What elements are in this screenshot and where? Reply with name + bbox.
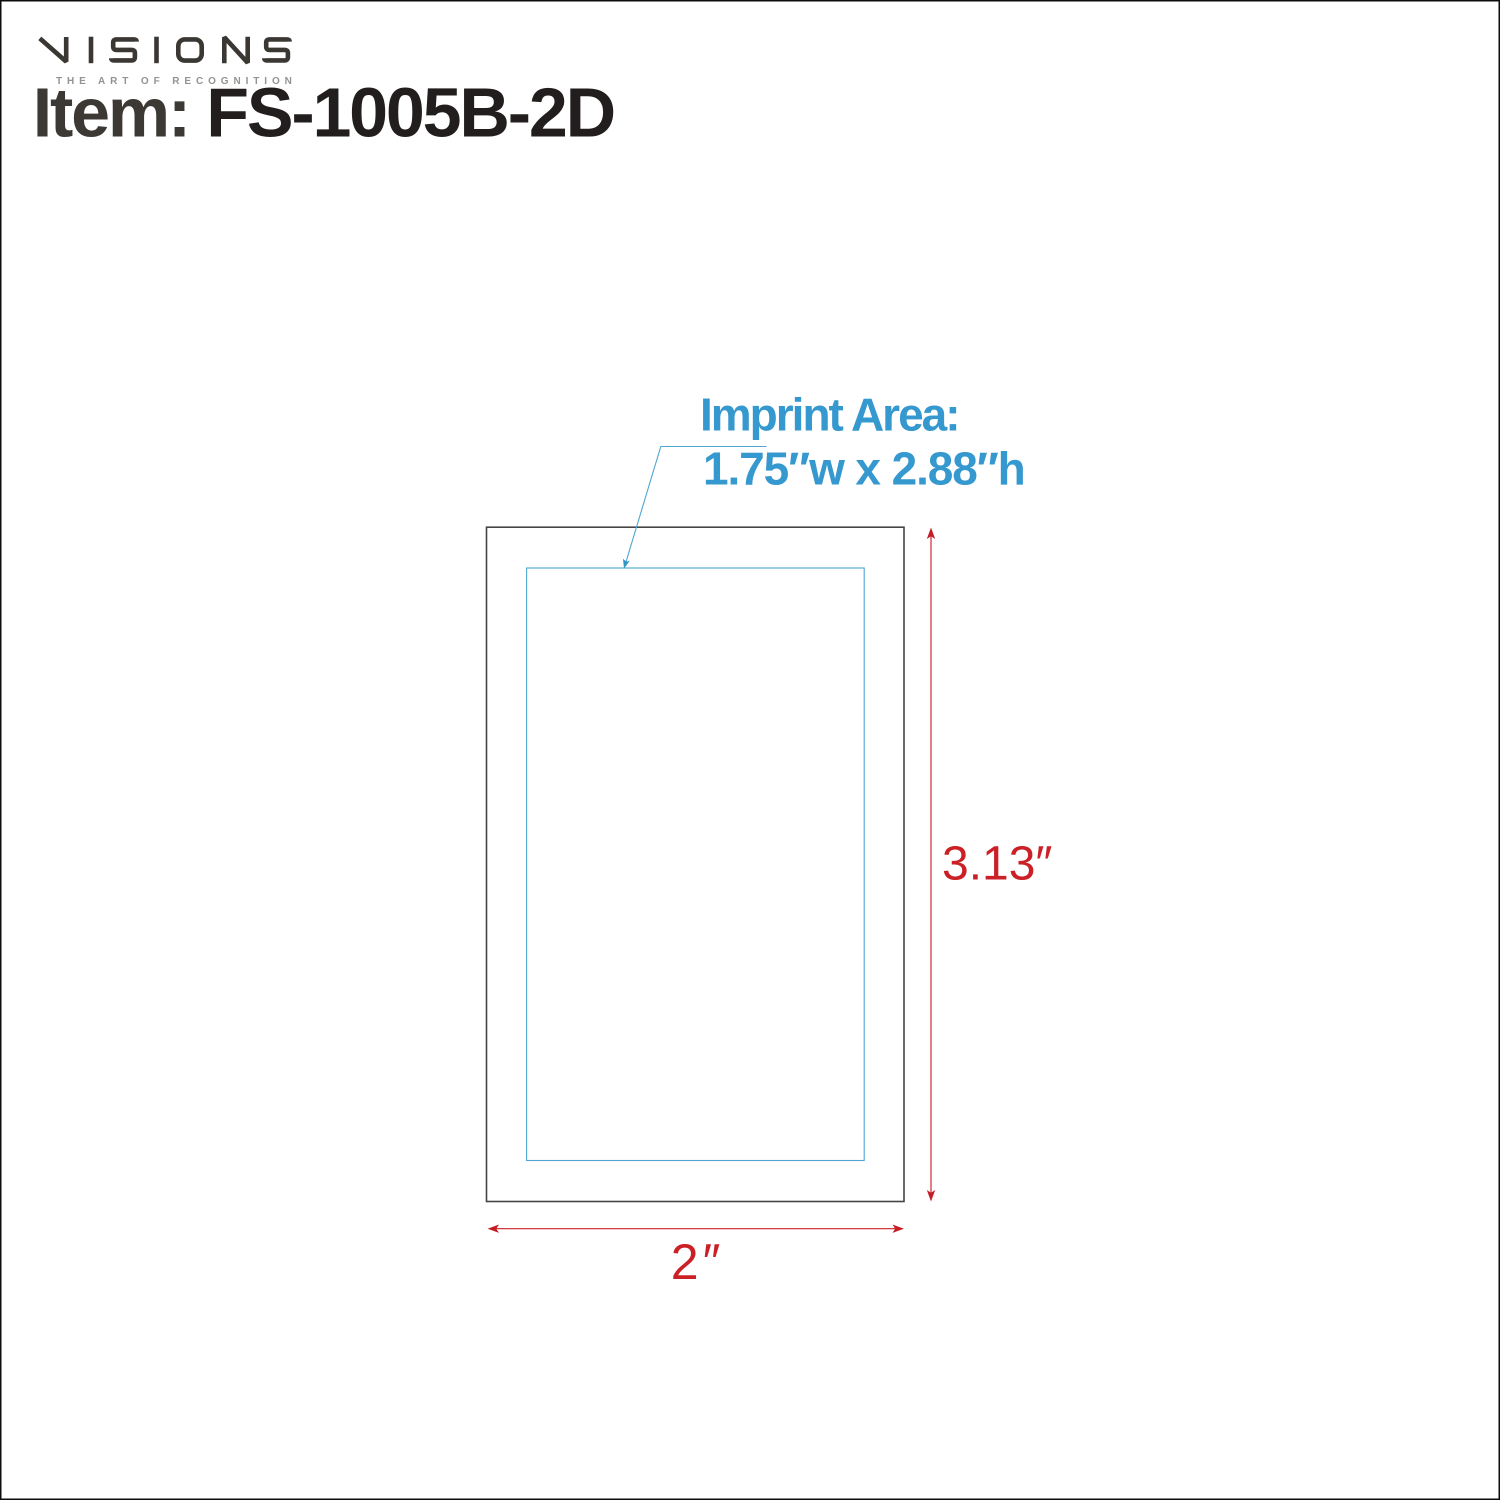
- svg-text:2″: 2″: [671, 1234, 725, 1290]
- svg-text:3.13″: 3.13″: [942, 838, 1052, 891]
- svg-text:Imprint Area:: Imprint Area:: [700, 389, 959, 441]
- svg-text:1.75″w x 2.88″h: 1.75″w x 2.88″h: [703, 443, 1025, 495]
- svg-text:Item: FS-1005B-2D: Item: FS-1005B-2D: [33, 74, 614, 152]
